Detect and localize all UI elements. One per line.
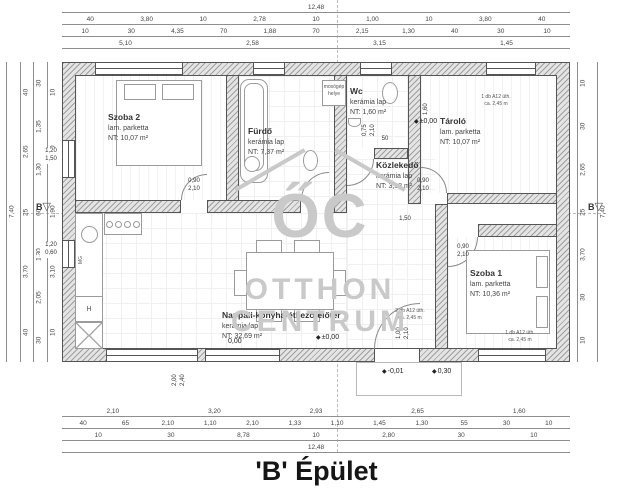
tag-door-szoba2: 0,90 2,10 — [182, 178, 206, 194]
level-value: 0,00 — [228, 338, 242, 345]
dim-value: 1,30 — [401, 420, 443, 428]
tag-window-terrace: 2,00 2,40 — [172, 364, 188, 396]
dim-value: 3,80 — [457, 16, 513, 24]
dim-chain-bottom-1: 2,103,202,932,651,60 — [62, 408, 570, 417]
dim-value: 2,10 — [147, 420, 189, 428]
dim-value: 10 — [578, 62, 588, 105]
dim-value: 30 — [135, 432, 208, 440]
room-area: NT: 32,69 m² — [222, 332, 372, 342]
dim-value: 1,10 — [189, 420, 231, 428]
dim-value: 40 — [432, 28, 478, 36]
room-name: Tároló — [440, 116, 540, 128]
tag-radiator-tarolo: 1 db A12 üth. ca. 2,45 m — [468, 94, 524, 107]
level-diamond-icon: ◆ — [414, 119, 419, 125]
dim-value: 30 — [34, 62, 44, 105]
window-living-bottom — [106, 349, 198, 362]
dim-chain-left-2: 402,65253,7040 — [20, 62, 31, 362]
window-szoba1-bottom — [478, 349, 546, 362]
section-marker-right: B▽ — [588, 200, 603, 213]
tag-washing-machine: mosógép helye — [320, 84, 348, 97]
window-kitchen-left — [62, 240, 75, 268]
dim-value: 30 — [485, 420, 527, 428]
room-name: Szoba 2 — [108, 112, 218, 124]
room-floor: kerámia lap — [222, 322, 372, 332]
window-szoba2-top — [95, 62, 183, 75]
page-title: 'B' Épület — [0, 456, 633, 487]
dim-value: 12,48 — [62, 444, 570, 452]
level-value: ±0,00 — [322, 334, 339, 341]
dim-value: 1,45 — [443, 40, 570, 48]
room-floor: kerámia lap — [248, 138, 332, 148]
dim-value: 2,10 — [62, 408, 164, 416]
dim-value: 10 — [280, 432, 353, 440]
level-diamond-icon: ◆ — [316, 335, 321, 341]
dim-chain-left-total: 7,40 — [6, 62, 17, 362]
dim-value: 40 — [62, 420, 104, 428]
dim-value: 3,80 — [118, 16, 174, 24]
room-floor: lam. parketta — [470, 280, 560, 290]
wall-tarolo-bottom — [447, 193, 557, 204]
section-marker-left: B▽ — [36, 200, 51, 213]
dim-chain-bottom-3: 10308,78102,803010 — [62, 432, 570, 441]
window-tarolo-top — [486, 62, 536, 75]
dim-value: 25 — [578, 191, 588, 234]
dim-value: 30 — [578, 276, 588, 319]
dim-value: 10 — [62, 28, 108, 36]
dim-value: 10 — [288, 16, 344, 24]
dim-value: 70 — [201, 28, 247, 36]
dim-value: 10 — [48, 302, 58, 362]
step-depth-marker: ◆0,30 — [432, 368, 451, 375]
dim-chain-top-4: 5,102,583,151,45 — [62, 40, 570, 49]
level-diamond-icon: ◆ — [432, 369, 437, 375]
dim-value: 30 — [108, 28, 154, 36]
level-marker-zero: 0,00 — [228, 338, 242, 345]
window-wc-top — [360, 62, 392, 75]
dim-value: 1,00 — [344, 16, 400, 24]
tag-window-szoba2: 1,20 1,50 — [40, 148, 62, 164]
room-label-nappali: Nappali-konyha-étkező-előtér kerámia lap… — [222, 310, 372, 341]
pillow — [124, 84, 156, 100]
wall-szoba2-furdo — [226, 75, 239, 201]
room-label-tarolo: Tároló lam. parketta NT: 10,07 m² — [440, 116, 540, 147]
dim-value: 2,65 — [367, 408, 469, 416]
tag-wc-width: 50 — [376, 136, 394, 144]
wall-szoba1-top — [478, 224, 557, 237]
dim-chain-top-2: 403,80102,78101,00103,8040 — [62, 16, 570, 25]
dim-chain-bottom-2: 40652,101,102,101,331,101,451,30553010 — [62, 420, 570, 429]
room-floor: kerámia lap — [350, 98, 400, 108]
dim-chain-bottom-total: 12,48 — [62, 444, 570, 453]
dim-value: 1,10 — [316, 420, 358, 428]
dim-value: 1,33 — [274, 420, 316, 428]
tag-dishwasher: MG — [78, 248, 85, 272]
dim-chain-right-1: 10302,65253,703010 — [577, 62, 588, 362]
dim-value: 3,20 — [164, 408, 266, 416]
dim-value: 2,65 — [21, 122, 31, 182]
washbasin-furdo — [244, 156, 260, 172]
chair — [333, 270, 346, 296]
dim-value: 2,05 — [34, 276, 44, 319]
section-triangle-icon: ▽ — [595, 201, 603, 213]
room-area: NT: 10,36 m² — [470, 290, 560, 300]
room-label-wc: Wc kerámia lap NT: 1,60 m² — [350, 86, 400, 117]
room-label-szoba2: Szoba 2 lam. parketta NT: 10,07 m² — [108, 112, 218, 143]
dim-value: 12,48 — [62, 4, 570, 12]
room-name: Fürdő — [248, 126, 332, 138]
dining-table — [246, 252, 334, 310]
dim-value: 2,10 — [231, 420, 273, 428]
dim-value: 8,78 — [207, 432, 280, 440]
dim-value: 10 — [578, 319, 588, 362]
dim-value: 2,93 — [265, 408, 367, 416]
dim-value: 7,40 — [7, 62, 17, 362]
dim-value: 10 — [48, 62, 58, 122]
dim-value: 3,15 — [316, 40, 443, 48]
room-name: Nappali-konyha-étkező-előtér — [222, 310, 372, 322]
level-value: ±0,00 — [420, 118, 437, 125]
dim-value: 10 — [524, 28, 570, 36]
level-marker-porch: ◆-0,01 — [382, 368, 404, 375]
dim-value: 30 — [425, 432, 498, 440]
dim-value: 55 — [443, 420, 485, 428]
chair — [256, 240, 282, 253]
chair — [294, 240, 320, 253]
pillow — [536, 296, 548, 328]
dim-value: 30 — [578, 105, 588, 148]
tag-radiator-szoba1: 1 db A12 üth. ca. 2,45 m — [492, 330, 548, 343]
section-triangle-icon: ▽ — [43, 201, 51, 213]
level-value: 0,30 — [438, 368, 452, 375]
dim-value: 40 — [21, 62, 31, 122]
chair — [234, 270, 247, 296]
level-marker-tarolo: ◆±0,00 — [414, 118, 437, 125]
wall-middle-a — [75, 200, 181, 213]
dim-chain-top-total: 12,48 — [62, 4, 570, 13]
window-furdo-top — [253, 62, 285, 75]
washbasin-wc — [348, 118, 361, 127]
shaft — [75, 322, 103, 349]
tag-door-szoba1: 0,90 2,10 — [450, 244, 476, 260]
room-name: Szoba 1 — [470, 268, 560, 280]
room-floor: lam. parketta — [440, 128, 540, 138]
room-area: NT: 10,07 m² — [108, 134, 218, 144]
level-diamond-icon: ◆ — [382, 369, 387, 375]
room-area: NT: 10,07 m² — [440, 138, 540, 148]
room-label-szoba1: Szoba 1 lam. parketta NT: 10,36 m² — [470, 268, 560, 299]
window-szoba2-left — [62, 140, 75, 178]
dim-value: 10 — [497, 432, 570, 440]
dim-value: 10 — [175, 16, 231, 24]
wall-szoba1-left — [435, 204, 448, 349]
dim-value: 40 — [21, 302, 31, 362]
cooktop — [104, 213, 142, 235]
dim-value: 2,58 — [189, 40, 316, 48]
level-marker-living: ◆±0,00 — [316, 334, 339, 341]
dim-value: 1,30 — [385, 28, 431, 36]
dim-value: 10 — [401, 16, 457, 24]
dim-value: 1,35 — [34, 105, 44, 148]
tag-door-entrance: 1,00 2,10 — [396, 318, 412, 348]
tag-corridor-width: 1,50 — [390, 216, 420, 224]
wall-wc-bottom — [374, 148, 408, 159]
room-floor: lam. parketta — [108, 124, 218, 134]
dim-value: 4,35 — [154, 28, 200, 36]
room-name: Wc — [350, 86, 400, 98]
entrance-door-opening — [374, 349, 420, 362]
room-name: Közlekedő — [376, 160, 434, 172]
dim-value: 2,15 — [339, 28, 385, 36]
dim-value: 1,88 — [247, 28, 293, 36]
tag-door-tarolo: 0,90 2,10 — [410, 178, 436, 194]
dim-value: 3,70 — [21, 242, 31, 302]
dim-value: 2,80 — [352, 432, 425, 440]
dim-value: 40 — [62, 16, 118, 24]
dim-value: 2,78 — [231, 16, 287, 24]
dim-value: 30 — [34, 319, 44, 362]
pillow — [162, 84, 194, 100]
dim-value: 40 — [514, 16, 570, 24]
dim-value: 3,70 — [578, 233, 588, 276]
dim-value: 30 — [478, 28, 524, 36]
tag-window-kitchen: 1,20 0,60 — [40, 242, 62, 258]
dim-value: 10 — [62, 432, 135, 440]
burner-icons — [105, 214, 141, 234]
level-value: -0,01 — [388, 368, 404, 375]
dim-value: 1,60 — [468, 408, 570, 416]
dim-value: 65 — [104, 420, 146, 428]
wall-middle-b — [207, 200, 301, 213]
tag-radiator-entrance: 2 db A12 üth. ca. 2,45 m — [384, 308, 436, 321]
dim-value: 5,10 — [62, 40, 189, 48]
room-label-furdo: Fürdő kerámia lap NT: 7,37 m² — [248, 126, 332, 157]
terrace-door-bottom — [205, 349, 280, 362]
dim-value: 1,45 — [358, 420, 400, 428]
dim-value: 25 — [21, 182, 31, 242]
dim-chain-top-3: 10304,35701,88702,151,30403010 — [62, 28, 570, 37]
dim-value: 2,65 — [578, 148, 588, 191]
kitchen-sink — [81, 226, 98, 243]
dim-value: 70 — [293, 28, 339, 36]
fridge: H — [75, 296, 103, 322]
dim-value: 10 — [528, 420, 570, 428]
room-area: NT: 7,37 m² — [248, 148, 332, 158]
